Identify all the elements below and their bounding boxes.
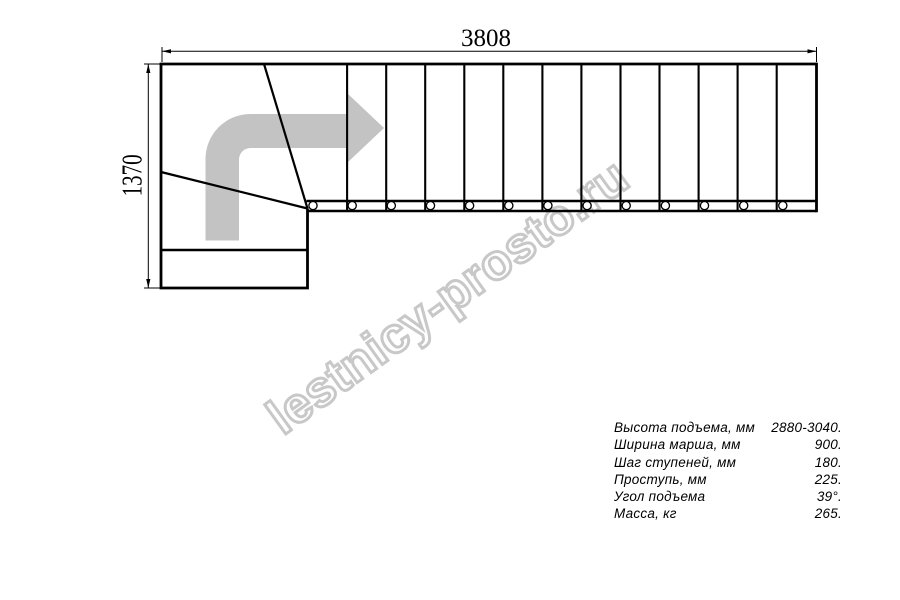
svg-text:3808: 3808 [461, 25, 511, 52]
svg-text:1370: 1370 [118, 154, 149, 196]
